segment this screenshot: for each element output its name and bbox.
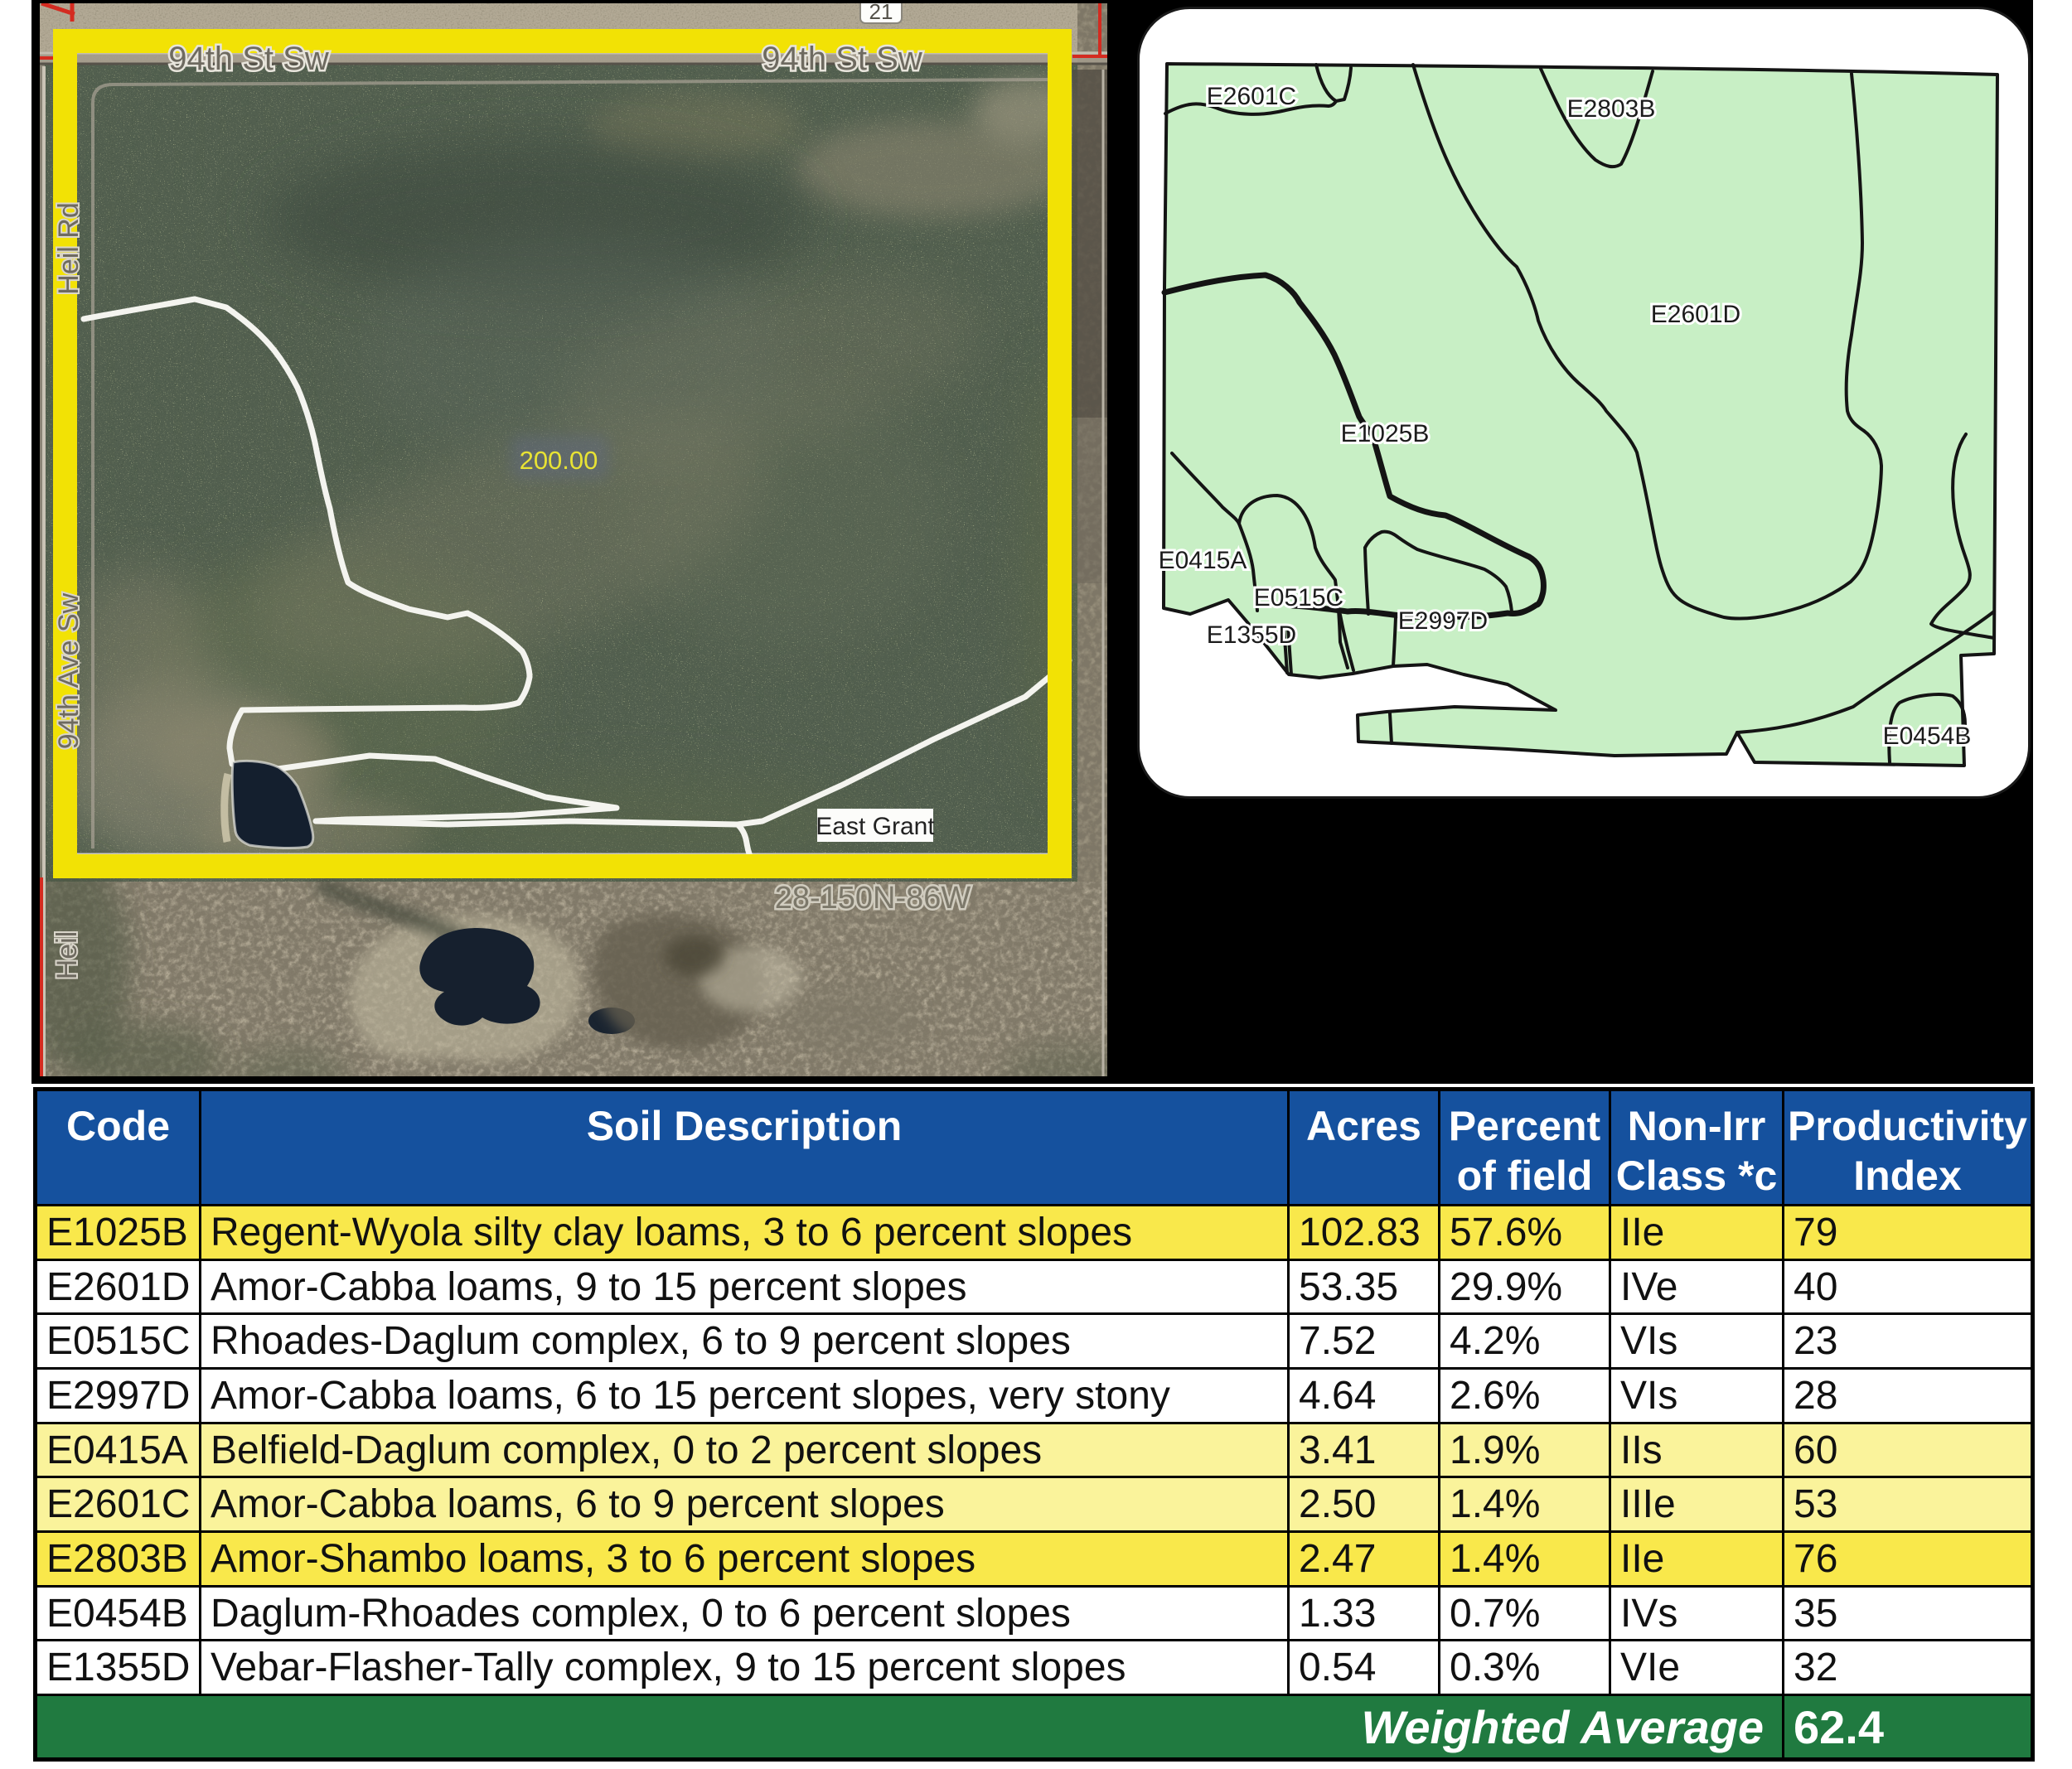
svg-text:E2601D: E2601D	[1651, 301, 1740, 328]
svg-text:E0515C: E0515C	[1254, 584, 1343, 611]
svg-text:E2601C: E2601C	[1207, 83, 1296, 110]
svg-text:94th Ave Sw: 94th Ave Sw	[53, 592, 85, 749]
svg-text:E0454B: E0454B	[1883, 723, 1972, 750]
svg-text:21: 21	[869, 3, 893, 24]
svg-text:28-150N-86W: 28-150N-86W	[775, 881, 971, 916]
svg-text:Heil Rd: Heil Rd	[53, 202, 85, 294]
svg-text:E2803B: E2803B	[1567, 95, 1656, 123]
svg-text:Heil: Heil	[51, 931, 83, 980]
svg-text:94th St Sw: 94th St Sw	[762, 41, 922, 77]
svg-text:E1025B: E1025B	[1341, 420, 1430, 447]
svg-text:E0415A: E0415A	[1159, 547, 1247, 574]
svg-text:E2997D: E2997D	[1398, 607, 1488, 635]
svg-text:94th St Sw: 94th St Sw	[168, 41, 329, 77]
svg-text:E1355D: E1355D	[1207, 621, 1296, 649]
svg-text:East Grant: East Grant	[816, 813, 935, 840]
svg-text:200.00: 200.00	[520, 446, 598, 475]
